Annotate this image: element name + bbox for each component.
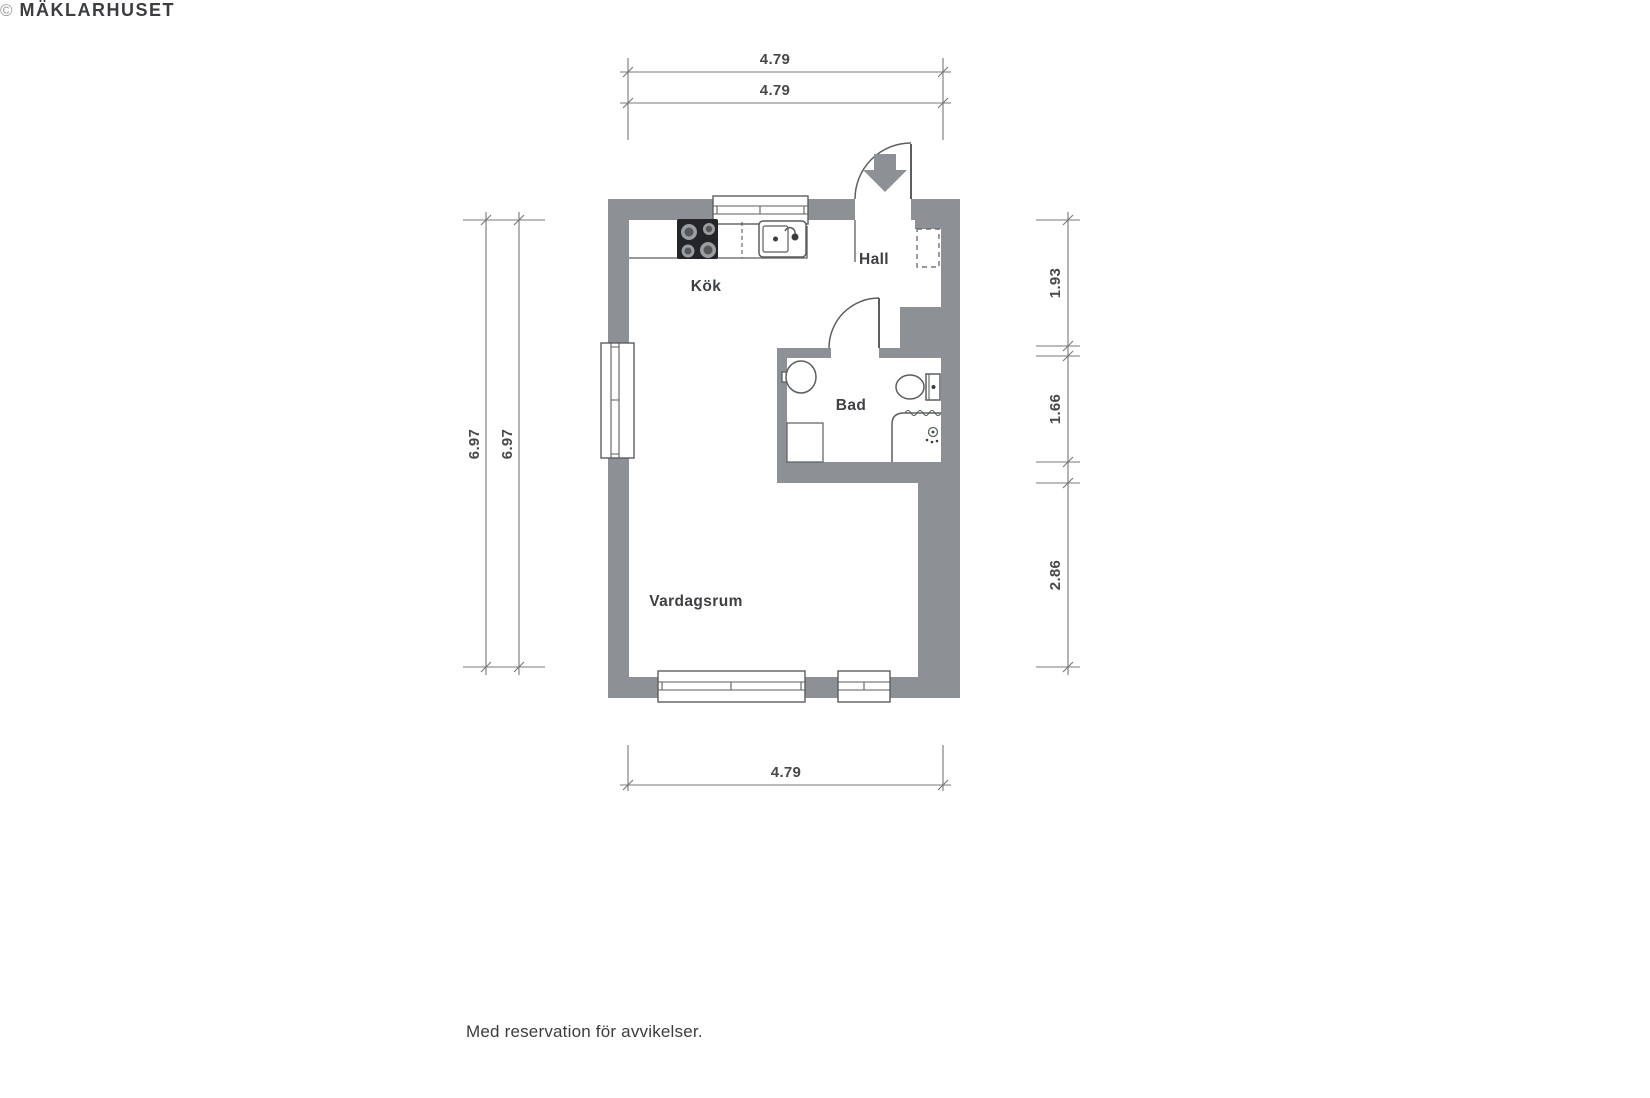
- dimension-top-inner-line: [620, 98, 951, 108]
- wall-right: [941, 199, 960, 698]
- toilet-icon: [896, 374, 940, 400]
- room-label-kitchen: Kök: [691, 278, 721, 295]
- wall-right-living: [918, 483, 941, 677]
- room-label-bathroom: Bad: [836, 397, 866, 414]
- wall-bath-south: [777, 462, 960, 483]
- room-label-living-room: Vardagsrum: [649, 593, 743, 610]
- windows: [601, 196, 890, 702]
- dimension-bottom-line: [620, 780, 951, 790]
- window-left: [601, 343, 634, 458]
- window-living-small: [838, 671, 890, 702]
- dimension-label-right-hall: 1.93: [1047, 268, 1064, 298]
- window-living-large: [658, 671, 805, 702]
- floorplan-page: Kök Hall Bad Vardagsrum: [0, 0, 1650, 1098]
- room-label-hall: Hall: [859, 251, 889, 268]
- dimension-label-right-living: 2.86: [1047, 560, 1064, 590]
- disclaimer-text: Med reservation för avvikelser.: [466, 1022, 703, 1042]
- wall-bath-north-left: [777, 348, 831, 358]
- floorplan-drawing: Kök Hall Bad Vardagsrum: [0, 0, 1650, 1098]
- dimension-label-top-outer: 4.79: [760, 51, 790, 68]
- wall-bath-north-right: [879, 348, 900, 358]
- dimension-top-outer-line: [620, 67, 951, 77]
- kitchen-fixtures: [629, 219, 855, 262]
- wall-hall-step: [900, 307, 941, 358]
- bathroom-door: [829, 298, 879, 348]
- bath-sink-icon: [782, 361, 816, 393]
- dimension-label-left-inner: 6.97: [499, 429, 516, 459]
- kitchen-sink-icon: [759, 221, 806, 257]
- dimension-label-right-bath: 1.66: [1047, 394, 1064, 424]
- wall-bath-west: [777, 348, 787, 462]
- wall-right-above-closet: [915, 199, 941, 229]
- dimension-right-line: [1063, 212, 1073, 675]
- dimension-top-extensions: [628, 58, 943, 140]
- bath-cabinet: [787, 423, 823, 462]
- dimension-label-top-inner: 4.79: [760, 82, 790, 99]
- window-kitchen: [713, 196, 808, 224]
- entrance-arrow-icon: [863, 154, 907, 192]
- dimension-label-bottom: 4.79: [771, 764, 801, 781]
- dimension-label-left-outer: 6.97: [466, 429, 483, 459]
- hall-closet: [917, 229, 939, 267]
- walls: [608, 199, 960, 698]
- stove-icon: [677, 219, 718, 259]
- shower-icon: [892, 411, 941, 463]
